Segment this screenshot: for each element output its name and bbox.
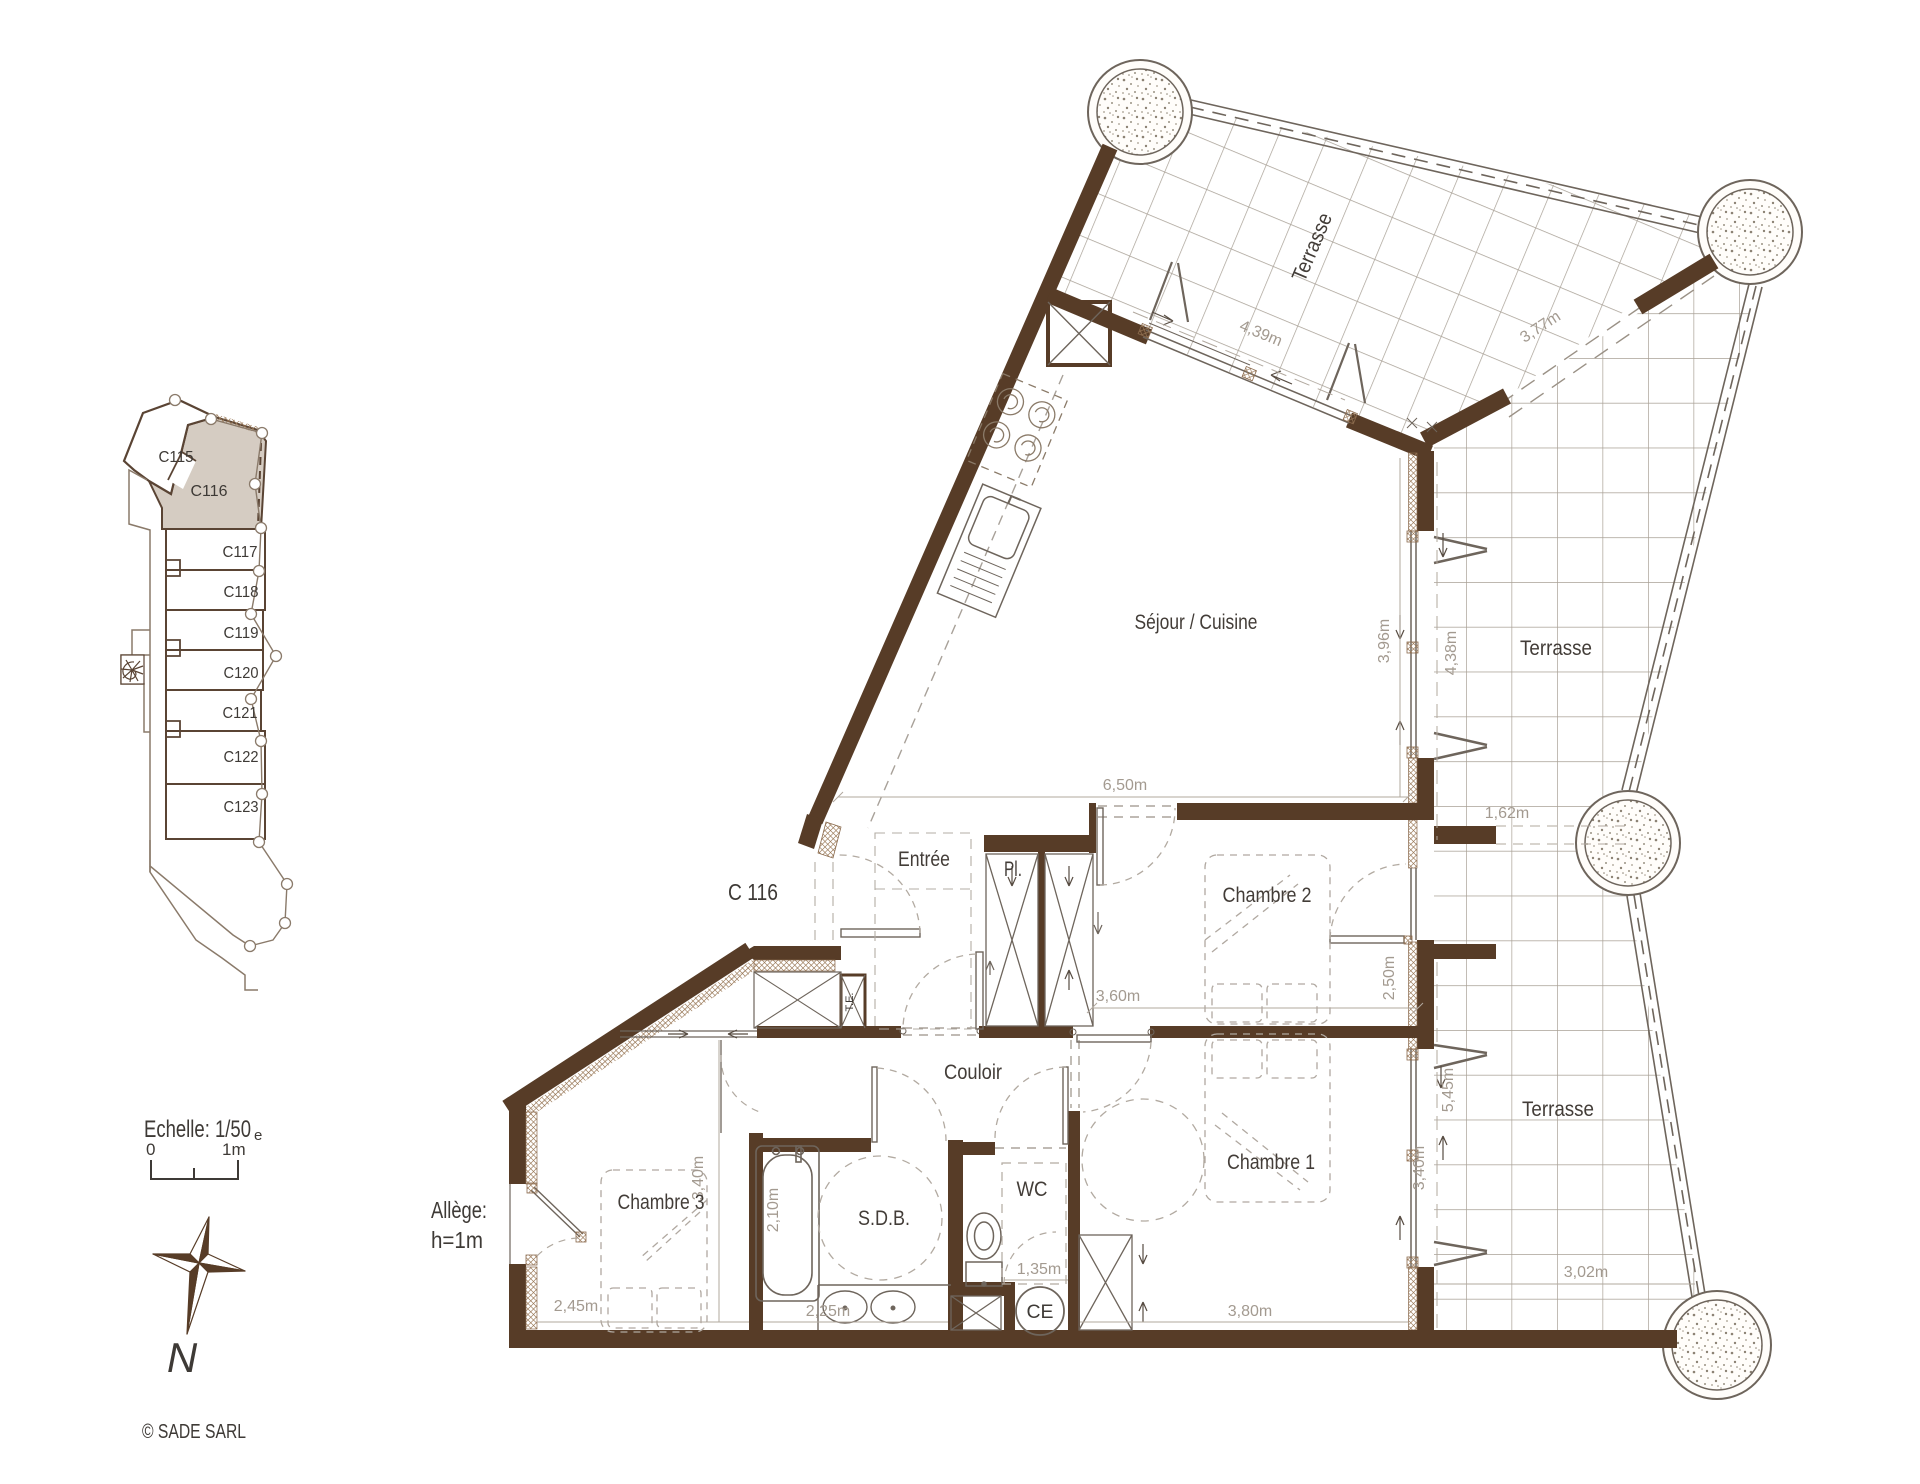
svg-text:1,62m: 1,62m (1485, 805, 1529, 822)
svg-text:Chambre 2: Chambre 2 (1223, 884, 1312, 907)
svg-text:Chambre 3: Chambre 3 (618, 1191, 705, 1214)
svg-text:1,35m: 1,35m (1017, 1261, 1061, 1278)
svg-text:C123: C123 (224, 799, 259, 816)
svg-text:Entrée: Entrée (898, 848, 950, 871)
svg-text:2,45m: 2,45m (554, 1298, 598, 1315)
svg-text:1m: 1m (222, 1140, 246, 1159)
svg-text:2,25m: 2,25m (806, 1303, 850, 1320)
svg-text:e: e (254, 1127, 262, 1144)
svg-text:3,96m: 3,96m (1376, 619, 1393, 663)
svg-text:Allège:: Allège: (431, 1197, 487, 1223)
svg-text:Couloir: Couloir (944, 1061, 1002, 1084)
svg-text:C117: C117 (223, 544, 258, 561)
svg-text:Echelle: 1/50: Echelle: 1/50 (144, 1116, 251, 1143)
svg-text:C116: C116 (191, 483, 228, 500)
svg-text:S.D.B.: S.D.B. (858, 1207, 910, 1230)
svg-text:C122: C122 (224, 749, 259, 766)
svg-text:0: 0 (146, 1140, 155, 1159)
svg-text:2,50m: 2,50m (1381, 956, 1398, 1000)
svg-text:C120: C120 (224, 665, 259, 682)
svg-text:2,10m: 2,10m (765, 1188, 782, 1232)
svg-text:4,38m: 4,38m (1443, 631, 1460, 675)
svg-text:5,45m: 5,45m (1440, 1068, 1457, 1112)
svg-text:3,80m: 3,80m (1228, 1303, 1272, 1320)
svg-text:3,60m: 3,60m (1096, 988, 1140, 1005)
svg-text:N: N (167, 1334, 198, 1381)
svg-text:3,02m: 3,02m (1564, 1264, 1608, 1281)
svg-text:Séjour / Cuisine: Séjour / Cuisine (1135, 611, 1258, 634)
svg-text:Pl.: Pl. (1004, 858, 1022, 881)
svg-text:CE: CE (1027, 1302, 1054, 1323)
svg-text:Terrasse: Terrasse (1522, 1098, 1594, 1121)
svg-text:Terrasse: Terrasse (1520, 637, 1592, 660)
svg-text:6,50m: 6,50m (1103, 777, 1147, 794)
svg-text:C121: C121 (223, 705, 258, 722)
svg-text:3,40m: 3,40m (1411, 1146, 1428, 1190)
svg-text:C119: C119 (224, 625, 259, 642)
svg-text:T.E.: T.E. (844, 993, 856, 1012)
svg-text:C 116: C 116 (728, 879, 778, 905)
svg-text:h=1m: h=1m (431, 1227, 483, 1253)
svg-text:C115: C115 (159, 449, 194, 466)
svg-text:C118: C118 (224, 584, 259, 601)
svg-text:Chambre 1: Chambre 1 (1227, 1151, 1315, 1174)
svg-text:© SADE SARL: © SADE SARL (142, 1421, 246, 1443)
svg-text:WC: WC (1017, 1178, 1048, 1201)
